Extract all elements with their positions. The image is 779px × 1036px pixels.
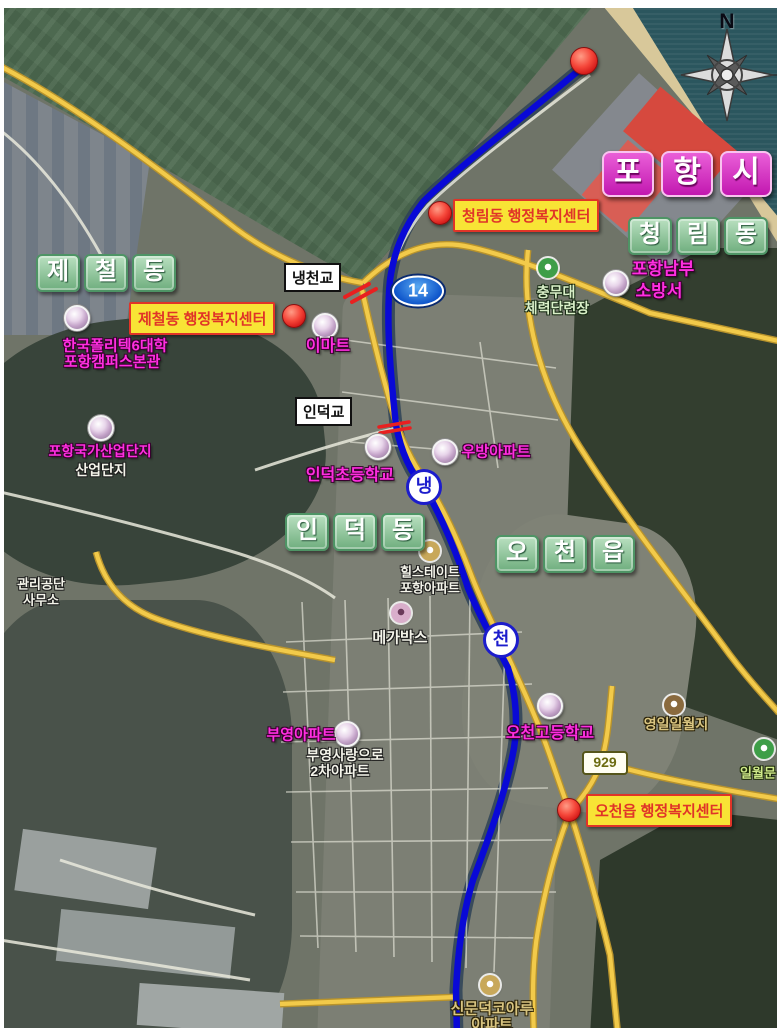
poi-label-emart: 이마트 (306, 332, 350, 356)
poi-label-industrial: 포항국가산업단지 (48, 441, 151, 461)
poi-label-buyoung-sarang-line2: 2차아파트 (310, 761, 369, 781)
district-label-ocheon: 오 천 읍 (495, 535, 639, 573)
district-char: 청 (628, 217, 672, 255)
poi-label-buyoung-apt: 부영아파트 (266, 724, 335, 745)
poi-marker-ocheon-high (537, 693, 563, 719)
north-label: N (719, 10, 734, 34)
poi-label-ocheon-high: 오천고등학교 (506, 719, 594, 743)
district-char: 동 (132, 254, 176, 292)
poi-label-ilwolmun: 일월문 (740, 763, 776, 782)
poi-marker-industrial (88, 415, 114, 441)
district-char: 오 (495, 535, 539, 573)
poi-label-indeok-elementary: 인덕초등학교 (306, 461, 394, 485)
map-screenshot: N 포 항 시 청 림 동 제 철 동 인 덕 동 오 천 읍 14 (0, 0, 779, 1036)
district-char: 읍 (591, 535, 635, 573)
poi-label-industrial-complex: 산업단지 (75, 460, 127, 480)
district-char: 제 (36, 254, 80, 292)
poi-marker-woobang-apt (432, 439, 458, 465)
poi-label-hillstate-line2: 포항아파트 (400, 578, 460, 597)
district-label-jecheol: 제 철 동 (36, 254, 180, 292)
poi-label-woobang-apt: 우방아파트 (461, 441, 530, 462)
attraction-icon-ilwolmun (754, 739, 774, 759)
fitness-center-icon (538, 258, 558, 278)
city-title-char: 포 (602, 151, 654, 197)
district-char: 천 (543, 535, 587, 573)
poi-label-polytech-line2: 포항캠퍼스본관 (64, 351, 161, 372)
frame-border-bottom (0, 1028, 779, 1036)
apartment-icon-koaru (480, 975, 500, 995)
office-box-ocheon: 오천읍 행정복지센터 (586, 794, 732, 827)
poi-marker-polytech (64, 305, 90, 331)
district-char: 림 (676, 217, 720, 255)
poi-label-chungmudae-line2: 체력단련장 (525, 298, 589, 318)
satellite-map: N 포 항 시 청 림 동 제 철 동 인 덕 동 오 천 읍 14 (0, 0, 779, 1036)
river-badge-naeng: 냉 (406, 469, 442, 505)
district-char: 동 (724, 217, 768, 255)
frame-border-top (0, 0, 779, 8)
cinema-icon (391, 603, 411, 623)
district-char: 인 (285, 513, 329, 551)
poi-marker-indeok-elementary (365, 434, 391, 460)
compass-rose (681, 29, 777, 121)
route-14-badge: 14 (392, 276, 444, 307)
city-title-char: 항 (661, 151, 713, 197)
poi-marker-buyoung-apt (334, 721, 360, 747)
attraction-icon-ilwolji (664, 695, 684, 715)
poi-label-ilwolji: 영일일월지 (644, 714, 708, 734)
office-marker-cheonglim (428, 201, 452, 225)
route-929-badge: 929 (582, 751, 628, 775)
poi-label-management-line2: 사무소 (23, 590, 59, 609)
office-box-cheonglim: 청림동 행정복지센터 (453, 199, 599, 232)
city-title-pohangsi: 포 항 시 (602, 151, 779, 197)
district-label-cheonglim: 청 림 동 (628, 217, 772, 255)
frame-border-left (0, 0, 4, 1036)
district-char: 덕 (333, 513, 377, 551)
office-marker-jecheol (282, 304, 306, 328)
river-badge-cheon: 천 (483, 622, 519, 658)
district-char: 철 (84, 254, 128, 292)
office-marker-ocheon (557, 798, 581, 822)
district-label-indeok: 인 덕 동 (285, 513, 429, 551)
bridge-label-indeok: 인덕교 (295, 397, 352, 426)
poi-label-fire-station-line2: 소방서 (636, 277, 683, 302)
major-roads-casing (0, 66, 779, 1036)
poi-label-megabox: 메가박스 (372, 627, 427, 648)
city-title-char: 시 (720, 151, 772, 197)
major-roads (0, 66, 779, 1036)
district-char: 동 (381, 513, 425, 551)
poi-marker-fire-station (603, 270, 629, 296)
office-box-jecheol: 제철동 행정복지센터 (129, 302, 275, 335)
bridge-label-naengcheon: 냉천교 (284, 263, 341, 292)
route-start-marker (570, 47, 598, 75)
